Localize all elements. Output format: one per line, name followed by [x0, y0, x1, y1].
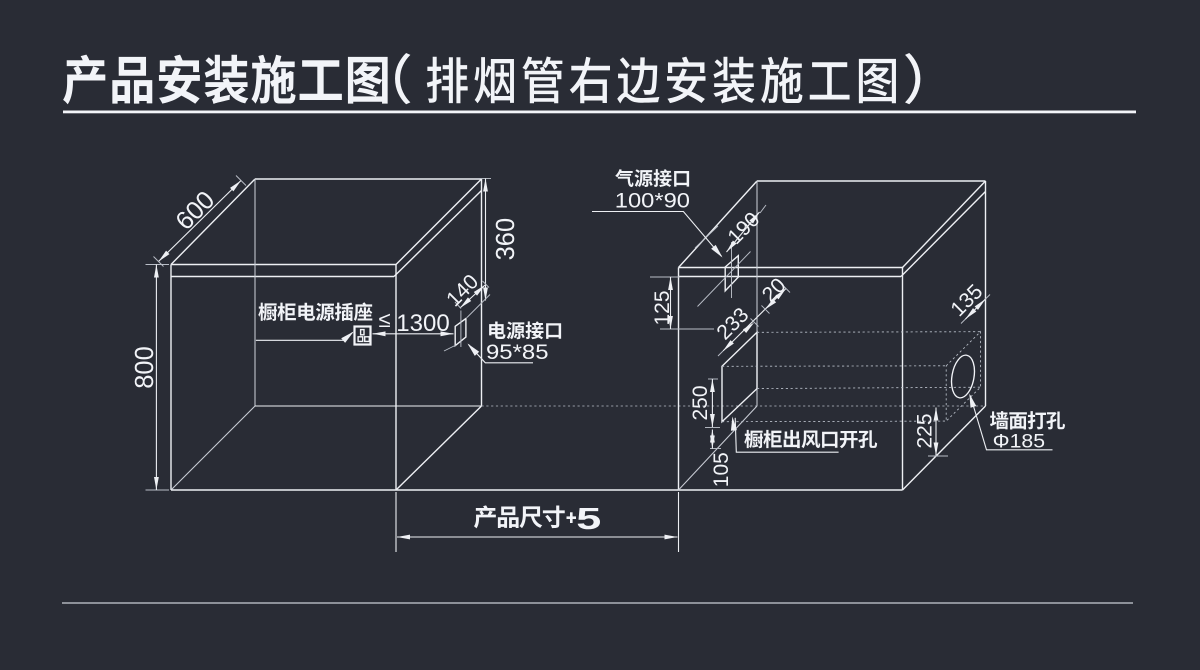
- svg-text:125: 125: [651, 290, 674, 325]
- svg-text:Φ185: Φ185: [993, 431, 1045, 452]
- svg-text:105: 105: [710, 452, 733, 487]
- svg-text:250: 250: [689, 385, 712, 420]
- svg-text:5: 5: [576, 502, 601, 537]
- svg-text:≤: ≤: [378, 307, 390, 332]
- svg-text:1300: 1300: [396, 310, 449, 337]
- svg-text:100*90: 100*90: [615, 189, 690, 212]
- svg-text:95*85: 95*85: [486, 340, 549, 363]
- svg-text:360: 360: [492, 218, 520, 261]
- svg-text:800: 800: [131, 346, 159, 389]
- svg-text:225: 225: [914, 413, 937, 448]
